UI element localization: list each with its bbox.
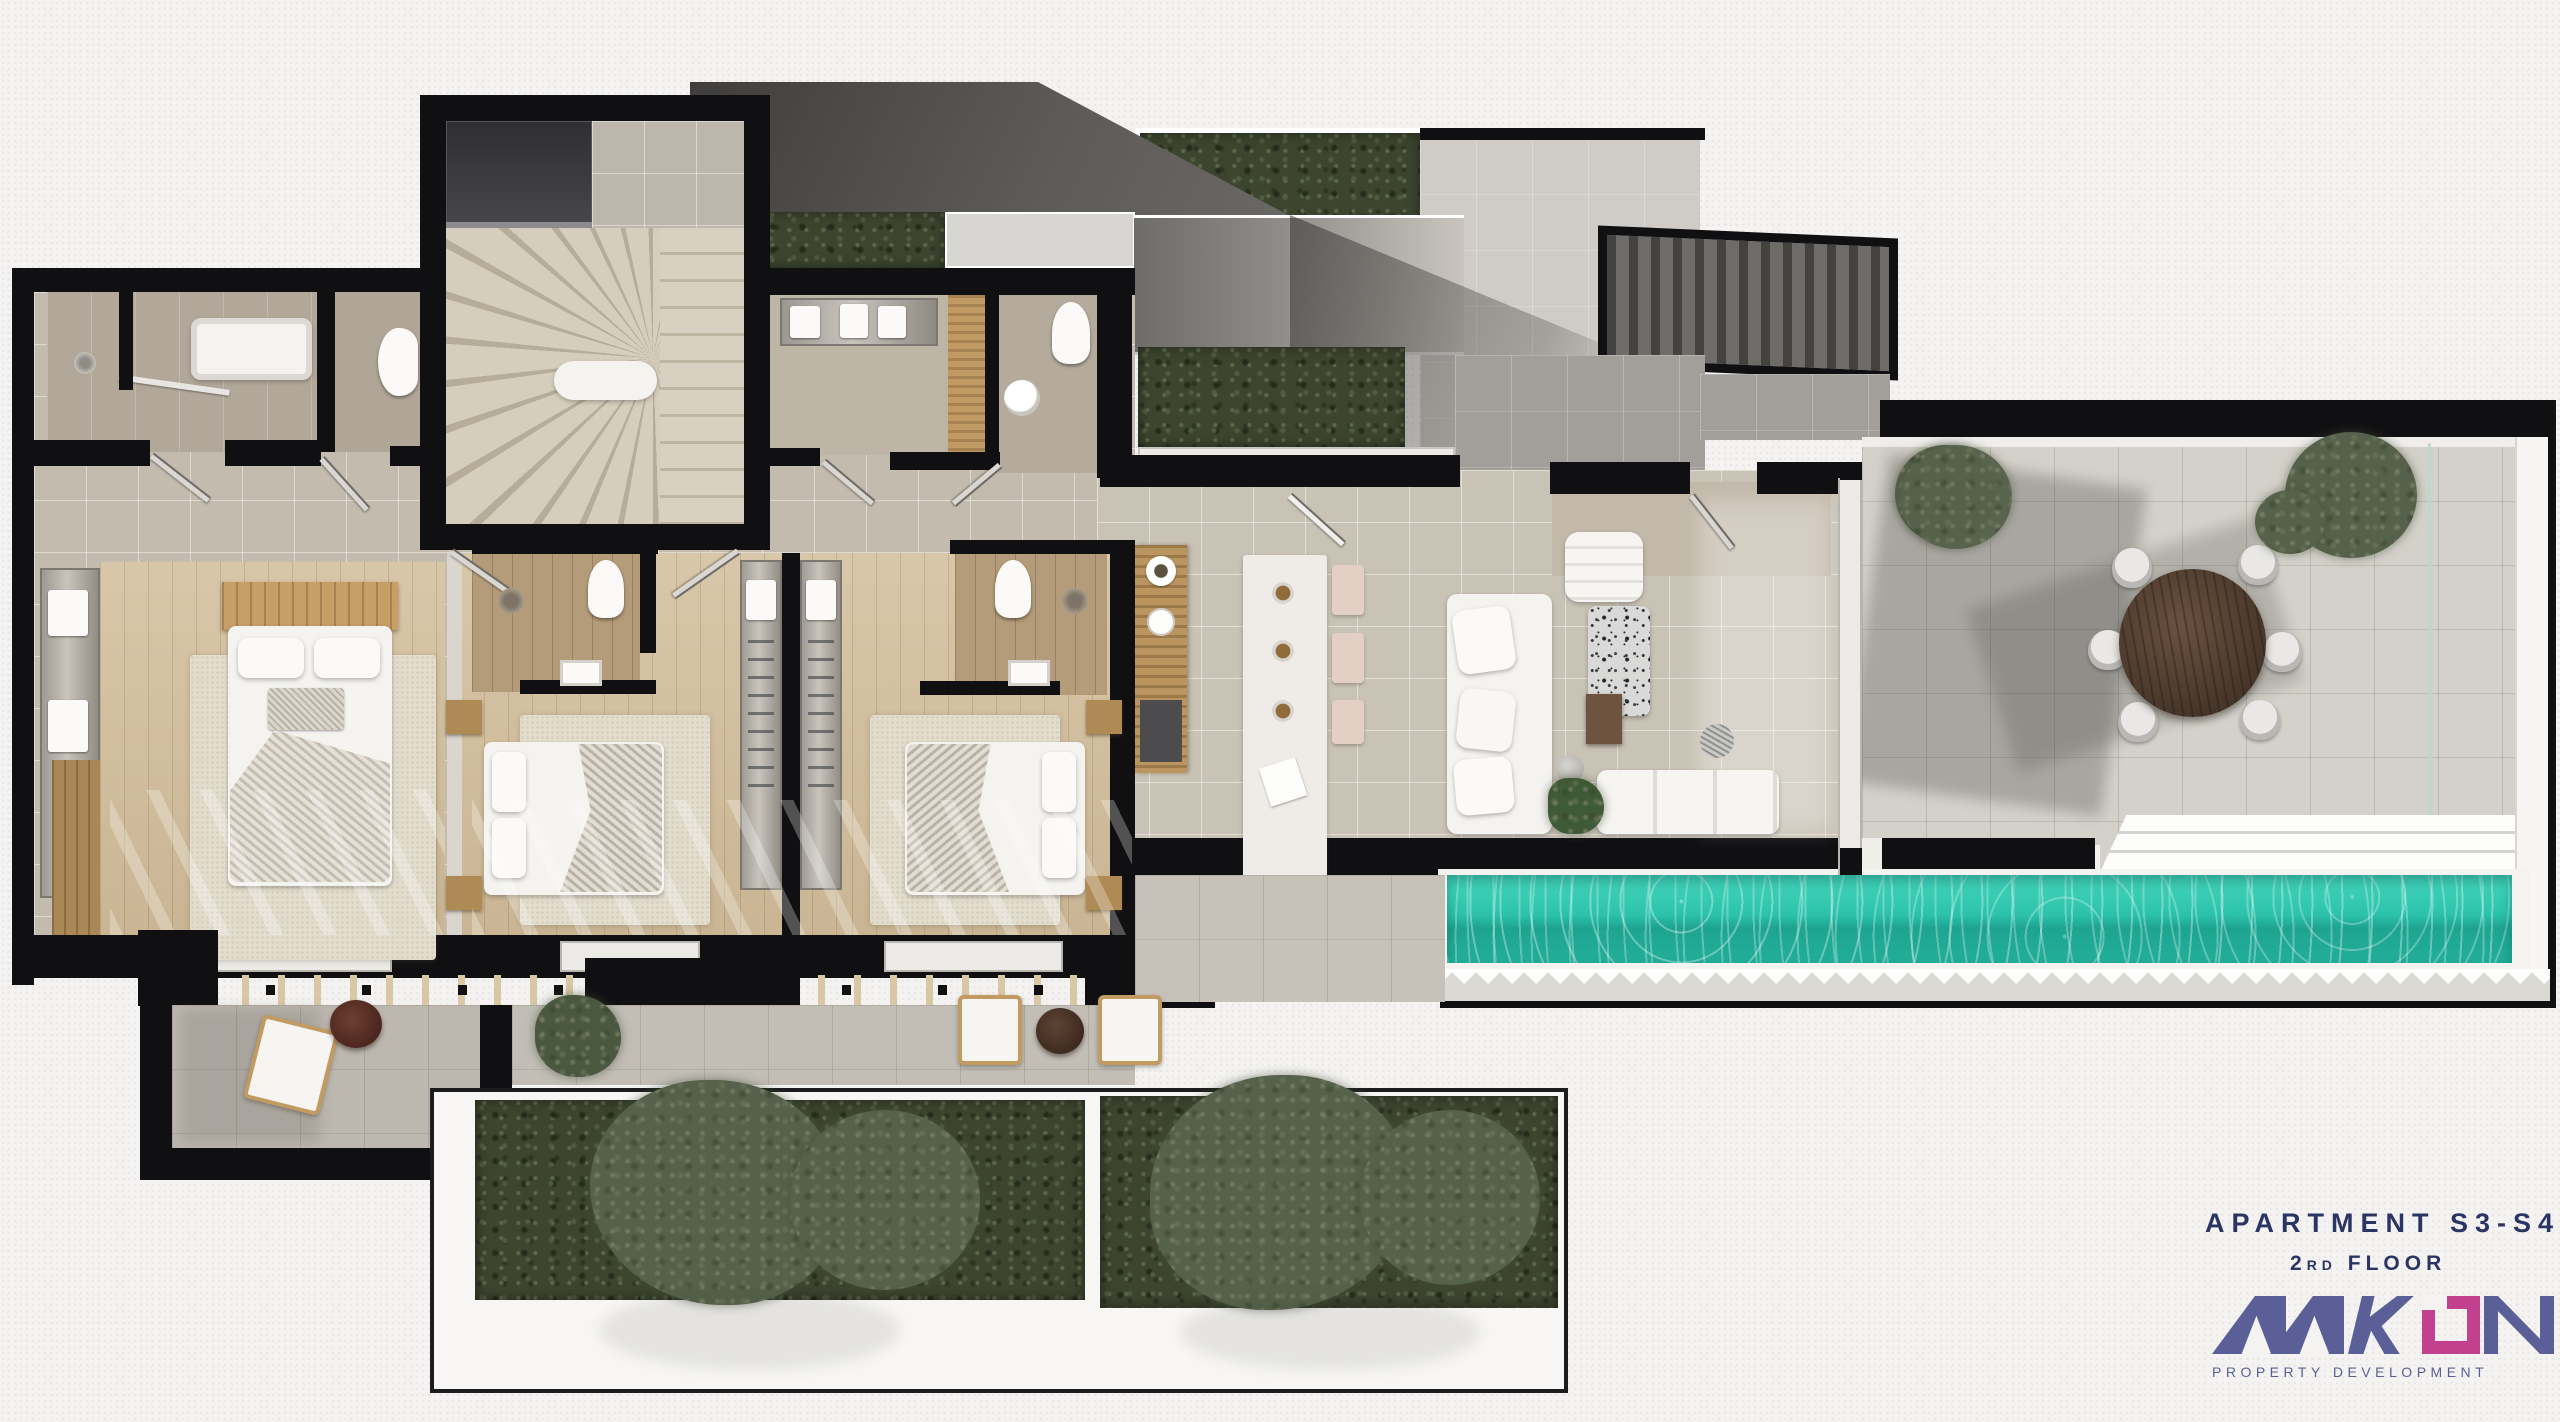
bedroom2-sunlight bbox=[472, 800, 1132, 935]
stair-straight-treads bbox=[660, 228, 744, 524]
walkway-under-roof bbox=[945, 212, 1135, 268]
storage-wardrobe bbox=[948, 295, 985, 453]
wc2-sink bbox=[1004, 380, 1040, 416]
master-wardrobe-box-2 bbox=[48, 700, 88, 752]
wc2-toilet bbox=[1052, 302, 1090, 364]
terrace-round-table bbox=[2119, 569, 2266, 717]
terrace-east-wall-line bbox=[2548, 400, 2556, 1007]
lounger-table bbox=[1036, 1008, 1084, 1054]
logo-letter-a2 bbox=[2270, 1296, 2344, 1354]
closet3-item bbox=[806, 580, 836, 620]
storage-row-wall bbox=[770, 448, 820, 466]
terrace-chair-5 bbox=[2118, 702, 2158, 742]
terrace-chair-1 bbox=[2112, 548, 2152, 588]
pool-deck-zigzag bbox=[1440, 969, 2550, 1001]
pool-steps bbox=[2100, 815, 2540, 872]
north-wall-right bbox=[768, 268, 1135, 295]
guest-wc-toilet bbox=[378, 328, 418, 396]
sun-lounger-1 bbox=[958, 995, 1022, 1065]
tree-shadow-2 bbox=[1180, 1295, 1480, 1370]
pool-side-walkway bbox=[1135, 875, 1445, 1002]
bedroom3-window bbox=[884, 941, 1063, 972]
master-shower-head-icon bbox=[74, 352, 96, 374]
master-pillow-right bbox=[314, 638, 380, 678]
ensuite2-right-wall bbox=[640, 553, 656, 653]
terrace-chair-4 bbox=[2262, 632, 2302, 672]
storage-wc-wall bbox=[985, 295, 999, 455]
closet3-rail-icon bbox=[808, 640, 834, 800]
living-window-wall bbox=[1838, 478, 1862, 875]
closet2-item bbox=[746, 580, 776, 620]
pergola-wall-chunk-1 bbox=[585, 958, 800, 1008]
upper-court-top-wall bbox=[1415, 128, 1705, 140]
pool-water bbox=[1447, 875, 2512, 963]
towel-stack-1 bbox=[790, 306, 820, 338]
dining-chair-1 bbox=[1332, 565, 1364, 615]
terrace-glass-partition bbox=[2428, 443, 2431, 871]
closet2-rail-icon bbox=[748, 640, 774, 800]
stair-landing-tiles bbox=[592, 121, 744, 228]
kitchen-sink-icon bbox=[1147, 608, 1175, 636]
stair-handrail bbox=[554, 361, 657, 400]
ottoman-pouf bbox=[1565, 532, 1643, 602]
sofa-cushion-2 bbox=[1455, 687, 1517, 753]
living-north-wall-left bbox=[1100, 455, 1460, 487]
window-wall-tab-bottom bbox=[1840, 848, 1862, 875]
ensuite3-toilet bbox=[995, 560, 1031, 618]
window-wall-tab-top bbox=[1840, 462, 1862, 480]
wc2-right-wall bbox=[1097, 295, 1132, 478]
north-wall-left bbox=[12, 268, 422, 292]
dining-chair-3 bbox=[1332, 700, 1364, 744]
sofa-cushion-3 bbox=[1453, 756, 1516, 817]
coffee-table-wood bbox=[1586, 694, 1622, 744]
kitchen-appliance bbox=[1140, 700, 1182, 762]
island-bowl-2 bbox=[1272, 640, 1294, 662]
logo-tagline: PROPERTY DEVELOPMENT bbox=[2212, 1364, 2488, 1380]
floor-suffix: RD bbox=[2307, 1257, 2337, 1273]
ensuite3-top-wall bbox=[950, 540, 1110, 554]
plan-floor-label: 2RD FLOOR bbox=[2290, 1252, 2446, 1276]
terrace-tree-right-lobe bbox=[2255, 490, 2325, 554]
terrace-chair-2 bbox=[2238, 545, 2278, 585]
bedroom3-nightstand-1 bbox=[1086, 700, 1122, 734]
master-headboard bbox=[222, 582, 398, 630]
terrace-shrub bbox=[535, 995, 621, 1077]
ensuite3-shower-drain-icon bbox=[1062, 588, 1088, 614]
master-pillow-left bbox=[238, 638, 304, 678]
logo-letter-n bbox=[2484, 1296, 2554, 1354]
right-court-tiles bbox=[1700, 374, 1890, 440]
master-wardrobe-wood bbox=[52, 760, 100, 935]
planter-tree-1b bbox=[790, 1110, 980, 1290]
indoor-plant bbox=[1548, 778, 1604, 834]
terrace-chair-6 bbox=[2240, 700, 2280, 740]
kitchen-hob-icon bbox=[1146, 556, 1176, 586]
wc2-row-wall bbox=[890, 452, 1000, 470]
bedroom2-nightstand-1 bbox=[446, 700, 482, 734]
master-wardrobe-box-1 bbox=[48, 590, 88, 636]
floor-number: 2 bbox=[2290, 1252, 2307, 1275]
towel-stack-2 bbox=[840, 304, 868, 338]
terrace-north-wall bbox=[1880, 400, 2556, 437]
dining-chair-2 bbox=[1332, 633, 1364, 683]
balcony-side-table bbox=[330, 1000, 382, 1048]
master-sunlight bbox=[110, 790, 445, 935]
master-bathtub bbox=[191, 318, 312, 380]
living-north-wall-right bbox=[1550, 462, 1690, 494]
balcony-corner-chunk bbox=[138, 930, 218, 1006]
tufted-bench bbox=[1597, 770, 1779, 834]
logo bbox=[2212, 1296, 2554, 1354]
hedge-planter-entry bbox=[1138, 347, 1405, 447]
island-bowl-3 bbox=[1272, 700, 1294, 722]
planter-tree-2b bbox=[1360, 1110, 1540, 1285]
marble-accent-table bbox=[1700, 724, 1734, 758]
master-throw-pillow bbox=[268, 688, 344, 730]
floor-word: FLOOR bbox=[2348, 1252, 2447, 1275]
sofa-cushion-1 bbox=[1451, 604, 1517, 675]
sun-lounger-2 bbox=[1098, 995, 1162, 1065]
towel-stack-3 bbox=[878, 306, 906, 338]
floor-plan-canvas: APARTMENT S3-S4 2RD FLOOR PROPERTY DEVEL… bbox=[0, 0, 2560, 1422]
terrace-tree-left bbox=[1900, 445, 2012, 549]
logo-letter-o bbox=[2422, 1296, 2480, 1354]
ensuite2-sink bbox=[560, 660, 602, 686]
tree-shadow-1 bbox=[600, 1290, 900, 1370]
ensuite2-toilet bbox=[588, 560, 624, 618]
logo-letter-k bbox=[2348, 1296, 2418, 1354]
west-outer-wall bbox=[12, 268, 34, 985]
island-bowl-1 bbox=[1272, 582, 1294, 604]
elevator-shaft bbox=[446, 121, 592, 228]
bathroom-row-wall-b bbox=[225, 440, 321, 466]
ensuite2-shower-drain-icon bbox=[498, 588, 524, 614]
plan-title: APARTMENT S3-S4 bbox=[2205, 1208, 2560, 1239]
master-bathroom-partition-stub bbox=[119, 292, 133, 390]
ensuite3-sink bbox=[1008, 660, 1050, 686]
bathroom-divider-wall bbox=[317, 292, 335, 452]
pool-deck-south-line bbox=[1440, 1001, 2556, 1008]
bathroom-row-wall-a bbox=[34, 440, 150, 466]
